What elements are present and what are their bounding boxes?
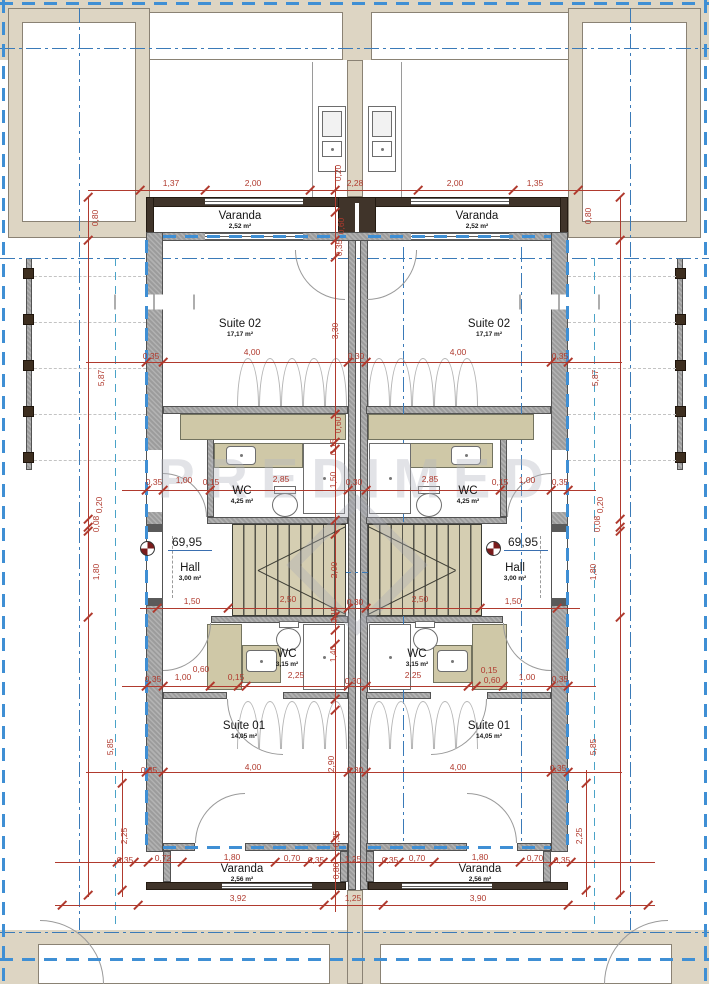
dimension-label: 0,35 bbox=[382, 856, 399, 865]
dimension-label: 4,00 bbox=[245, 763, 262, 772]
dimension-label: 1,37 bbox=[163, 179, 180, 188]
dimension-label: 1,25 bbox=[345, 855, 362, 864]
dimension-label: 1,35 bbox=[527, 179, 544, 188]
room-label-wc-upper-left: WC 4,25 m² bbox=[231, 485, 253, 505]
dimension-label: 0,30 bbox=[348, 352, 365, 361]
room-name: Hall bbox=[504, 562, 526, 575]
dimension-label: 1,00 bbox=[175, 673, 192, 682]
dimension-label: 0,35 bbox=[146, 478, 163, 487]
dimension-label: 5,87 bbox=[591, 370, 600, 387]
dimension-label: 0,60 bbox=[193, 665, 210, 674]
room-label-varanda-top-right: Varanda 2,52 m² bbox=[456, 210, 499, 230]
room-name: Suite 01 bbox=[468, 720, 510, 733]
dimension-label: 1,80 bbox=[472, 853, 489, 862]
dimension-label: 1,50 bbox=[184, 597, 201, 606]
dimension-label: 1,25 bbox=[345, 894, 362, 903]
dimension-label: 0,35 bbox=[335, 240, 344, 257]
dimension-label: 2,25 bbox=[120, 828, 129, 845]
dimension-label: 0,60 bbox=[337, 218, 346, 235]
dimension-label: 0,20 bbox=[95, 497, 104, 514]
room-name: WC bbox=[457, 485, 479, 498]
room-area: 3,00 m² bbox=[504, 575, 526, 583]
dimension-label: 0,60 bbox=[334, 417, 343, 434]
dimension-label: 5,87 bbox=[97, 370, 106, 387]
dimension-label: 0,15 bbox=[203, 478, 220, 487]
room-area: 3,00 m² bbox=[179, 575, 201, 583]
dimension-label: 1,00 bbox=[519, 476, 536, 485]
dimension-label: 1,40 bbox=[329, 646, 338, 663]
room-name: WC bbox=[406, 648, 428, 661]
level-marker-icon bbox=[140, 541, 155, 556]
dimension-label: 0,08 bbox=[593, 516, 602, 533]
room-label-varanda-top-left: Varanda 2,52 m² bbox=[219, 210, 262, 230]
dimension-label: 0,35 bbox=[143, 352, 160, 361]
dimension-label: 0,35 bbox=[308, 856, 325, 865]
dimension-label: 0,35 bbox=[141, 766, 158, 775]
dimension-label: 0,15 bbox=[228, 673, 245, 682]
level-value: 69,95 bbox=[168, 536, 212, 551]
room-area: 2,52 m² bbox=[219, 223, 262, 231]
dimension-label: 4,00 bbox=[450, 348, 467, 357]
room-area: 14,05 m² bbox=[468, 733, 510, 741]
dimension-label: 1,00 bbox=[519, 673, 536, 682]
room-area: 2,56 m² bbox=[459, 876, 502, 884]
room-name: Varanda bbox=[459, 863, 502, 876]
dimension-label: 1,50 bbox=[505, 597, 522, 606]
room-name: Suite 02 bbox=[468, 318, 510, 331]
room-label-wc-lower-left: WC 3,15 m² bbox=[276, 648, 298, 668]
dimension-line bbox=[586, 770, 587, 897]
room-area: 3,15 m² bbox=[406, 661, 428, 669]
room-label-hall-right: Hall 3,00 m² bbox=[504, 562, 526, 582]
dimension-label: 0,70 bbox=[527, 854, 544, 863]
room-area: 14,05 m² bbox=[223, 733, 265, 741]
room-name: WC bbox=[276, 648, 298, 661]
dimension-label: 0,35 bbox=[117, 856, 134, 865]
dimension-label: 0,35 bbox=[552, 478, 569, 487]
dimension-label: 0,80 bbox=[332, 863, 341, 880]
room-area: 2,52 m² bbox=[456, 223, 499, 231]
dimension-label: 0,20 bbox=[596, 497, 605, 514]
dimension-line bbox=[122, 686, 596, 687]
room-area: 17,17 m² bbox=[468, 331, 510, 339]
room-label-suite01-left: Suite 01 14,05 m² bbox=[223, 720, 265, 740]
dimension-label: 0,35 bbox=[552, 675, 569, 684]
dimension-label: 1,80 bbox=[589, 564, 598, 581]
room-area: 17,17 m² bbox=[219, 331, 261, 339]
dimension-label: 0,72 bbox=[155, 854, 172, 863]
dimension-label: 5,85 bbox=[589, 739, 598, 756]
dimension-label: 0,30 bbox=[345, 677, 362, 686]
room-label-varanda-bottom-right: Varanda 2,56 m² bbox=[459, 863, 502, 883]
dimension-line bbox=[335, 166, 336, 912]
dimension-line bbox=[88, 190, 620, 191]
dimension-label: 0,08 bbox=[92, 516, 101, 533]
dimension-line bbox=[140, 608, 580, 609]
dimension-label: 0,70 bbox=[409, 854, 426, 863]
dimension-label: 4,00 bbox=[244, 348, 261, 357]
room-area: 3,15 m² bbox=[276, 661, 298, 669]
dimension-label: 2,00 bbox=[330, 562, 339, 579]
dimension-label: 0,80 bbox=[584, 208, 593, 225]
dimension-label: 2,25 bbox=[405, 671, 422, 680]
room-label-wc-upper-right: WC 4,25 m² bbox=[457, 485, 479, 505]
dimension-layer: 1,372,002,282,001,350,200,600,350,805,87… bbox=[0, 0, 709, 984]
dimension-label: 0,15 bbox=[330, 607, 339, 624]
level-marker-icon bbox=[486, 541, 501, 556]
room-name: Varanda bbox=[456, 210, 499, 223]
dimension-label: 2,25 bbox=[288, 671, 305, 680]
dimension-label: 0,35 bbox=[552, 352, 569, 361]
dimension-label: 0,15 bbox=[329, 439, 338, 456]
room-label-wc-lower-right: WC 3,15 m² bbox=[406, 648, 428, 668]
floor-plan-canvas: PREDIMED 1,372,002,282,001,350,200,600,3… bbox=[0, 0, 709, 984]
room-label-suite02-right: Suite 02 17,17 m² bbox=[468, 318, 510, 338]
room-name: WC bbox=[231, 485, 253, 498]
dimension-label: 0,15 bbox=[492, 478, 509, 487]
room-label-varanda-bottom-left: Varanda 2,56 m² bbox=[221, 863, 264, 883]
dimension-label: 0,35 bbox=[550, 764, 567, 773]
room-area: 4,25 m² bbox=[457, 498, 479, 506]
dimension-label: 0,70 bbox=[284, 854, 301, 863]
dimension-label: 2,85 bbox=[422, 475, 439, 484]
dimension-label: 3,92 bbox=[230, 894, 247, 903]
room-name: Hall bbox=[179, 562, 201, 575]
dimension-label: 0,15 bbox=[481, 666, 498, 675]
dimension-label: 0,30 bbox=[346, 478, 363, 487]
room-name: Varanda bbox=[219, 210, 262, 223]
dimension-line bbox=[88, 197, 89, 897]
dimension-label: 1,50 bbox=[329, 472, 338, 489]
dimension-label: 0,60 bbox=[484, 676, 501, 685]
dimension-label: 2,85 bbox=[273, 475, 290, 484]
level-value: 69,95 bbox=[504, 536, 548, 551]
dimension-label: 1,80 bbox=[224, 853, 241, 862]
dimension-label: 1,00 bbox=[176, 476, 193, 485]
dimension-label: 5,85 bbox=[106, 739, 115, 756]
dimension-line bbox=[122, 490, 596, 491]
dimension-label: 2,50 bbox=[412, 595, 429, 604]
room-name: Varanda bbox=[221, 863, 264, 876]
room-area: 4,25 m² bbox=[231, 498, 253, 506]
dimension-label: 0,20 bbox=[334, 165, 343, 182]
room-label-hall-left: Hall 3,00 m² bbox=[179, 562, 201, 582]
dimension-line bbox=[620, 197, 621, 897]
dimension-label: 2,25 bbox=[575, 828, 584, 845]
dimension-label: 0,35 bbox=[145, 675, 162, 684]
dimension-line bbox=[86, 362, 622, 363]
dimension-label: 0,30 bbox=[347, 766, 364, 775]
dimension-label: 2,28 bbox=[347, 179, 364, 188]
dimension-label: 2,00 bbox=[245, 179, 262, 188]
room-label-suite02-left: Suite 02 17,17 m² bbox=[219, 318, 261, 338]
dimension-label: 0,35 bbox=[332, 831, 341, 848]
dimension-label: 0,35 bbox=[554, 856, 571, 865]
dimension-label: 2,00 bbox=[447, 179, 464, 188]
room-area: 2,56 m² bbox=[221, 876, 264, 884]
dimension-label: 4,00 bbox=[450, 763, 467, 772]
dimension-label: 3,90 bbox=[470, 894, 487, 903]
dimension-label: 1,80 bbox=[92, 564, 101, 581]
room-label-suite01-right: Suite 01 14,05 m² bbox=[468, 720, 510, 740]
dimension-label: 2,90 bbox=[327, 756, 336, 773]
room-name: Suite 01 bbox=[223, 720, 265, 733]
dimension-label: 0,30 bbox=[347, 598, 364, 607]
dimension-label: 3,30 bbox=[331, 323, 340, 340]
dimension-label: 2,50 bbox=[280, 595, 297, 604]
room-name: Suite 02 bbox=[219, 318, 261, 331]
dimension-label: 0,80 bbox=[91, 210, 100, 227]
